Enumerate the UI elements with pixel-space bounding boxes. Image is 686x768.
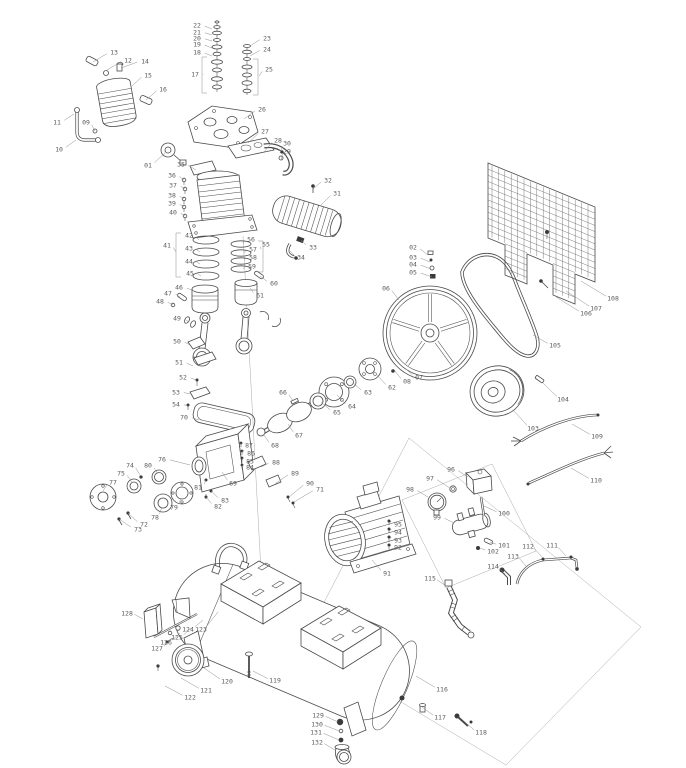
callout-37: 37 [169, 181, 185, 189]
svg-text:92: 92 [394, 543, 402, 551]
svg-text:65: 65 [333, 408, 341, 416]
callout-76: 76 [158, 455, 190, 465]
svg-text:27: 27 [261, 127, 269, 135]
svg-text:47: 47 [164, 289, 172, 297]
svg-text:08: 08 [403, 377, 411, 385]
svg-text:06: 06 [382, 284, 390, 292]
callout-15: 15 [132, 71, 152, 86]
intake-filter-assembly [75, 56, 153, 143]
svg-text:12: 12 [124, 56, 132, 64]
callout-128: 128 [121, 609, 143, 619]
svg-text:31: 31 [333, 189, 341, 197]
callout-22: 22 [193, 21, 212, 29]
callout-113: 113 [507, 552, 526, 566]
callout-115: 115 [424, 574, 446, 586]
svg-text:42: 42 [185, 231, 193, 239]
callout-38: 38 [168, 191, 184, 199]
svg-text:41: 41 [163, 241, 171, 249]
svg-text:122: 122 [184, 693, 196, 701]
cable-109 [511, 414, 600, 447]
svg-text:91: 91 [383, 569, 391, 577]
svg-text:124: 124 [182, 625, 194, 633]
svg-text:57: 57 [249, 245, 257, 253]
callout-56: 56 [243, 235, 255, 244]
svg-text:75: 75 [117, 469, 125, 477]
caster-assembly [335, 719, 351, 764]
callout-66: 66 [279, 388, 293, 401]
svg-text:69: 69 [229, 479, 237, 487]
callout-103: 103 [513, 410, 539, 432]
callout-118: 118 [466, 723, 487, 736]
svg-text:115: 115 [424, 574, 436, 582]
svg-text:09: 09 [82, 118, 90, 126]
svg-text:89: 89 [291, 469, 299, 477]
svg-text:94: 94 [394, 528, 402, 536]
callout-70: 70 [180, 413, 199, 421]
svg-text:77: 77 [109, 478, 117, 486]
svg-text:71: 71 [316, 485, 324, 493]
callout-41: 41 [163, 241, 176, 252]
svg-text:108: 108 [607, 294, 619, 302]
svg-text:04: 04 [409, 260, 417, 268]
callout-51: 51 [175, 358, 193, 366]
callout-117: 117 [422, 707, 446, 721]
key-104 [535, 375, 544, 383]
svg-text:13: 13 [110, 48, 118, 56]
svg-text:39: 39 [168, 199, 176, 207]
svg-text:128: 128 [121, 609, 133, 617]
callout-90: 90 [289, 479, 314, 497]
part-128 [144, 604, 162, 638]
callout-54: 54 [172, 400, 188, 408]
callout-116: 116 [416, 676, 448, 693]
svg-text:123: 123 [195, 625, 207, 633]
svg-text:18: 18 [193, 48, 201, 56]
callout-108: 108 [581, 281, 619, 302]
svg-text:81: 81 [194, 483, 202, 491]
callout-44: 44 [185, 257, 200, 265]
svg-text:01: 01 [144, 161, 152, 169]
svg-text:05: 05 [409, 268, 417, 276]
svg-text:116: 116 [436, 685, 448, 693]
callout-53: 53 [172, 388, 190, 396]
svg-text:109: 109 [591, 432, 603, 440]
callout-82: 82 [206, 497, 222, 510]
svg-text:51: 51 [175, 358, 183, 366]
callout-62: 62 [376, 374, 396, 391]
flywheel [383, 286, 477, 380]
svg-text:80: 80 [144, 461, 152, 469]
callout-97: 97 [426, 474, 450, 488]
svg-text:58: 58 [249, 253, 257, 261]
svg-text:64: 64 [348, 402, 356, 410]
svg-text:49: 49 [173, 314, 181, 322]
crankshaft [257, 398, 318, 436]
svg-text:11: 11 [53, 118, 61, 126]
svg-text:02: 02 [409, 243, 417, 251]
svg-text:17: 17 [191, 70, 199, 78]
svg-text:21: 21 [193, 28, 201, 36]
svg-text:90: 90 [306, 479, 314, 487]
callout-17: 17 [191, 70, 203, 78]
callout-55: 55 [260, 240, 270, 249]
callout-24: 24 [250, 45, 271, 56]
svg-text:105: 105 [549, 341, 561, 349]
svg-text:59: 59 [248, 262, 256, 270]
svg-text:98: 98 [406, 485, 414, 493]
svg-text:85: 85 [246, 457, 254, 465]
callout-111: 111 [546, 541, 566, 556]
seal-63 [344, 376, 356, 388]
svg-text:15: 15 [144, 71, 152, 79]
unloader-pipe [517, 556, 579, 585]
callout-71: 71 [294, 485, 324, 502]
svg-text:97: 97 [426, 474, 434, 482]
svg-text:114: 114 [487, 562, 499, 570]
svg-text:43: 43 [185, 244, 193, 252]
svg-text:54: 54 [172, 400, 180, 408]
callout-68: 68 [263, 434, 279, 449]
bearing-65 [310, 393, 326, 409]
svg-text:120: 120 [221, 677, 233, 685]
svg-text:24: 24 [263, 45, 271, 53]
svg-text:121: 121 [200, 686, 212, 694]
svg-text:16: 16 [159, 85, 167, 93]
svg-text:10: 10 [55, 145, 63, 153]
svg-text:110: 110 [590, 476, 602, 484]
exploded-diagram: 0102030405060708091011121314151617181920… [0, 0, 686, 768]
callout-99: 99 [433, 513, 454, 523]
callout-39: 39 [168, 199, 184, 207]
drain-117 [420, 704, 426, 713]
callout-06: 06 [382, 284, 399, 300]
callout-121: 121 [181, 678, 212, 694]
svg-text:74: 74 [126, 461, 134, 469]
svg-text:99: 99 [433, 513, 441, 521]
svg-text:73: 73 [134, 525, 142, 533]
callout-110: 110 [571, 468, 602, 484]
guard-screws [539, 230, 549, 288]
svg-text:35: 35 [177, 160, 185, 168]
wheel-120 [156, 644, 204, 676]
piston-1 [192, 285, 218, 313]
svg-text:46: 46 [175, 283, 183, 291]
svg-text:132: 132 [311, 738, 323, 746]
svg-text:66: 66 [279, 388, 287, 396]
svg-text:76: 76 [158, 455, 166, 463]
callout-45: 45 [186, 269, 201, 277]
svg-text:60: 60 [270, 279, 278, 287]
svg-text:107: 107 [590, 304, 602, 312]
callout-120: 120 [204, 668, 233, 685]
svg-text:34: 34 [297, 253, 305, 261]
svg-text:103: 103 [527, 424, 539, 432]
svg-text:63: 63 [364, 388, 372, 396]
svg-text:68: 68 [271, 441, 279, 449]
callout-109: 109 [572, 424, 603, 440]
cylinder-block [182, 171, 257, 238]
callout-40: 40 [169, 208, 185, 216]
svg-text:30: 30 [283, 139, 291, 147]
svg-text:129: 129 [312, 711, 324, 719]
callout-43: 43 [185, 244, 200, 252]
svg-text:83: 83 [221, 496, 229, 504]
svg-text:102: 102 [487, 547, 499, 555]
svg-text:111: 111 [546, 541, 558, 549]
svg-text:37: 37 [169, 181, 177, 189]
svg-text:112: 112 [522, 542, 534, 550]
callout-13: 13 [93, 48, 118, 62]
svg-text:44: 44 [185, 257, 193, 265]
svg-text:53: 53 [172, 388, 180, 396]
callout-63: 63 [353, 383, 372, 396]
callout-48: 48 [156, 297, 173, 305]
piston-rings-1 [193, 236, 219, 280]
callout-74: 74 [126, 461, 140, 475]
svg-text:45: 45 [186, 269, 194, 277]
svg-text:100: 100 [498, 509, 510, 517]
svg-text:131: 131 [310, 728, 322, 736]
svg-text:117: 117 [434, 713, 446, 721]
flywheel-hardware-02-05 [428, 251, 436, 279]
svg-text:70: 70 [180, 413, 188, 421]
svg-text:95: 95 [394, 520, 402, 528]
svg-text:48: 48 [156, 297, 164, 305]
hub-62 [359, 358, 381, 380]
svg-text:22: 22 [193, 21, 201, 29]
svg-text:40: 40 [169, 208, 177, 216]
svg-text:79: 79 [170, 503, 178, 511]
callout-25: 25 [259, 65, 273, 76]
fitting-97 [450, 486, 456, 492]
callout-11: 11 [53, 114, 74, 126]
svg-text:28: 28 [274, 136, 282, 144]
svg-text:32: 32 [324, 176, 332, 184]
svg-text:55: 55 [262, 240, 270, 248]
svg-text:67: 67 [295, 431, 303, 439]
callout-10: 10 [55, 140, 76, 153]
svg-text:14: 14 [141, 57, 149, 65]
diagram-canvas: 0102030405060708091011121314151617181920… [0, 0, 686, 768]
svg-text:127: 127 [151, 644, 163, 652]
callout-122: 122 [165, 686, 196, 701]
callout-73: 73 [119, 519, 142, 533]
svg-text:23: 23 [263, 34, 271, 42]
callout-46: 46 [175, 283, 194, 291]
belt-guard-mesh [488, 163, 595, 304]
callout-36: 36 [168, 171, 184, 180]
svg-text:26: 26 [258, 105, 266, 113]
svg-text:50: 50 [173, 337, 181, 345]
piston-2 [235, 280, 257, 306]
svg-text:96: 96 [447, 465, 455, 473]
svg-text:113: 113 [507, 552, 519, 560]
callout-18: 18 [193, 48, 212, 56]
svg-text:118: 118 [475, 728, 487, 736]
svg-text:104: 104 [557, 395, 569, 403]
svg-text:29: 29 [283, 147, 291, 155]
svg-text:61: 61 [256, 291, 264, 299]
drain-valve-118 [455, 714, 473, 727]
hose-115 [445, 580, 474, 638]
callout-106: 106 [556, 297, 592, 317]
pressure-gauge [428, 493, 446, 515]
svg-text:33: 33 [309, 243, 317, 251]
callout-104: 104 [543, 383, 569, 403]
svg-text:93: 93 [394, 536, 402, 544]
callout-21: 21 [193, 28, 212, 36]
svg-text:07: 07 [415, 373, 423, 381]
callout-98: 98 [406, 485, 428, 497]
svg-text:56: 56 [247, 235, 255, 243]
svg-text:36: 36 [168, 171, 176, 179]
callout-102: 102 [480, 547, 499, 555]
svg-text:87: 87 [245, 441, 253, 449]
callout-09: 09 [82, 118, 95, 131]
callout-58: 58 [244, 253, 257, 261]
svg-text:62: 62 [388, 383, 396, 391]
svg-text:86: 86 [247, 449, 255, 457]
motor-pulley [465, 360, 544, 422]
svg-text:130: 130 [311, 720, 323, 728]
valve-stacks [212, 20, 253, 95]
elbow-114 [500, 568, 510, 586]
callout-31: 31 [321, 189, 341, 205]
callout-50: 50 [173, 337, 190, 345]
callout-100: 100 [484, 506, 510, 517]
callout-132: 132 [311, 738, 335, 750]
callout-96: 96 [447, 465, 468, 477]
svg-text:88: 88 [272, 458, 280, 466]
callout-23: 23 [250, 34, 271, 46]
svg-text:38: 38 [168, 191, 176, 199]
callout-112: 112 [522, 542, 542, 557]
svg-text:119: 119 [269, 676, 281, 684]
svg-text:25: 25 [265, 65, 273, 73]
callout-05: 05 [409, 268, 432, 277]
svg-text:52: 52 [179, 373, 187, 381]
svg-text:101: 101 [498, 541, 510, 549]
svg-text:125: 125 [171, 633, 183, 641]
callout-32: 32 [313, 176, 332, 189]
svg-text:78: 78 [151, 513, 159, 521]
manifold-99 [449, 497, 493, 541]
pressure-switch [466, 469, 492, 494]
callout-33: 33 [301, 240, 317, 251]
callout-52: 52 [179, 373, 196, 381]
